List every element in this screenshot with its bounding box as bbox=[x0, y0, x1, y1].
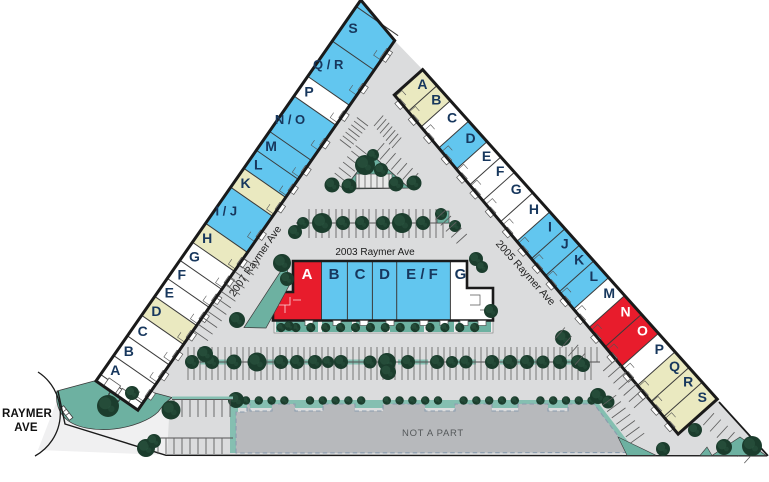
svg-text:N / O: N / O bbox=[275, 112, 305, 127]
svg-text:NOT A PART: NOT A PART bbox=[402, 428, 464, 439]
svg-text:AVE: AVE bbox=[14, 422, 38, 434]
svg-text:L: L bbox=[590, 268, 599, 284]
svg-text:I: I bbox=[548, 219, 552, 235]
svg-text:S: S bbox=[698, 389, 707, 405]
svg-text:I / J: I / J bbox=[215, 204, 237, 219]
svg-text:E: E bbox=[165, 285, 174, 301]
svg-text:L: L bbox=[254, 157, 263, 173]
svg-text:O: O bbox=[637, 322, 648, 338]
svg-text:K: K bbox=[574, 252, 584, 268]
svg-text:M: M bbox=[603, 285, 615, 301]
svg-text:G: G bbox=[189, 249, 200, 265]
svg-text:D: D bbox=[379, 266, 390, 283]
svg-text:D: D bbox=[465, 130, 475, 146]
svg-text:C: C bbox=[138, 323, 148, 339]
svg-text:E: E bbox=[482, 148, 491, 164]
svg-text:A: A bbox=[110, 362, 120, 378]
svg-text:J: J bbox=[561, 235, 569, 251]
svg-text:A: A bbox=[417, 76, 427, 92]
svg-text:Q: Q bbox=[669, 358, 680, 374]
svg-text:N: N bbox=[621, 303, 631, 319]
svg-text:Q / R: Q / R bbox=[313, 57, 344, 72]
svg-text:G: G bbox=[511, 181, 522, 197]
svg-text:G: G bbox=[455, 266, 467, 283]
svg-text:D: D bbox=[151, 303, 161, 319]
svg-text:H: H bbox=[529, 201, 539, 217]
svg-text:B: B bbox=[124, 343, 134, 359]
svg-text:B: B bbox=[329, 266, 340, 283]
svg-text:P: P bbox=[655, 341, 664, 357]
svg-text:A: A bbox=[302, 266, 313, 283]
svg-text:C: C bbox=[447, 109, 457, 125]
svg-text:RAYMER: RAYMER bbox=[2, 408, 52, 420]
svg-text:P: P bbox=[304, 83, 313, 99]
svg-text:2003 Raymer Ave: 2003 Raymer Ave bbox=[335, 247, 415, 258]
svg-text:B: B bbox=[431, 92, 441, 108]
svg-text:F: F bbox=[496, 163, 505, 179]
svg-text:M: M bbox=[265, 138, 277, 154]
svg-text:R: R bbox=[683, 373, 693, 389]
svg-text:C: C bbox=[355, 266, 366, 283]
svg-text:K: K bbox=[240, 175, 250, 191]
svg-text:H: H bbox=[202, 230, 212, 246]
svg-text:E / F: E / F bbox=[406, 266, 438, 283]
svg-text:S: S bbox=[348, 20, 357, 36]
svg-text:F: F bbox=[178, 267, 187, 283]
